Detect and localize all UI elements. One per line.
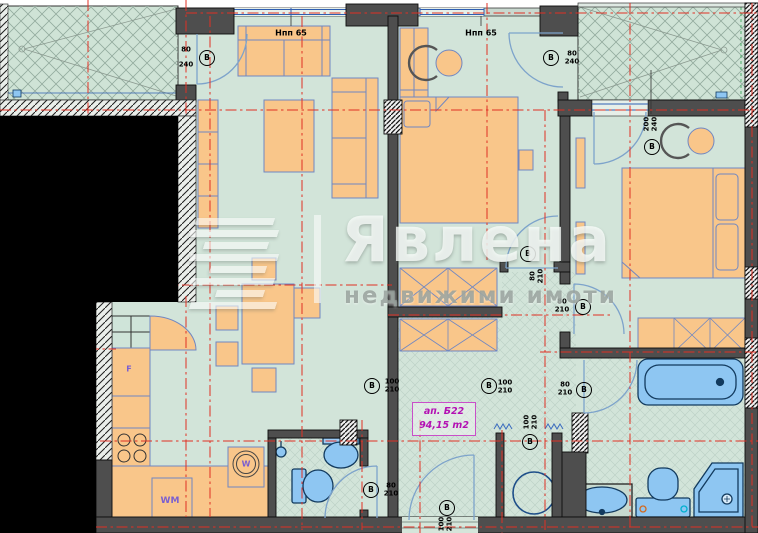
apartment-number: ап. Б22 <box>424 406 464 417</box>
wardrobe-row-hall <box>400 319 497 351</box>
bathtub <box>638 359 743 405</box>
sofa-main <box>238 26 330 76</box>
window-bed2 <box>592 100 648 116</box>
fridge <box>112 348 150 396</box>
wardrobe-bed2 <box>638 318 745 352</box>
bed2 <box>622 168 745 278</box>
apartment-area: 94,15 m2 <box>419 420 469 431</box>
window-living <box>234 8 348 16</box>
side-table <box>294 288 320 318</box>
stove <box>112 428 150 466</box>
tv-cabinet <box>198 100 218 228</box>
coffee-table <box>264 100 314 172</box>
sofa-side <box>332 78 378 198</box>
wardrobe-row-bed1 <box>400 268 497 306</box>
apartment-label: ап. Б22 94,15 m2 <box>412 402 476 436</box>
bed1 <box>400 97 518 223</box>
floor-plan-drawing <box>0 0 758 533</box>
floor-plan: Нпп 65Нпп 6580240В80240В200240В80210В802… <box>0 0 758 533</box>
window-bed1 <box>420 8 484 16</box>
wc-toilet <box>292 469 333 503</box>
kitchen-sink-unit <box>228 447 264 487</box>
nightstand-bed1 <box>519 150 533 170</box>
kitchen-counter <box>112 396 150 428</box>
kitchen-cabinet-grid <box>112 316 150 348</box>
